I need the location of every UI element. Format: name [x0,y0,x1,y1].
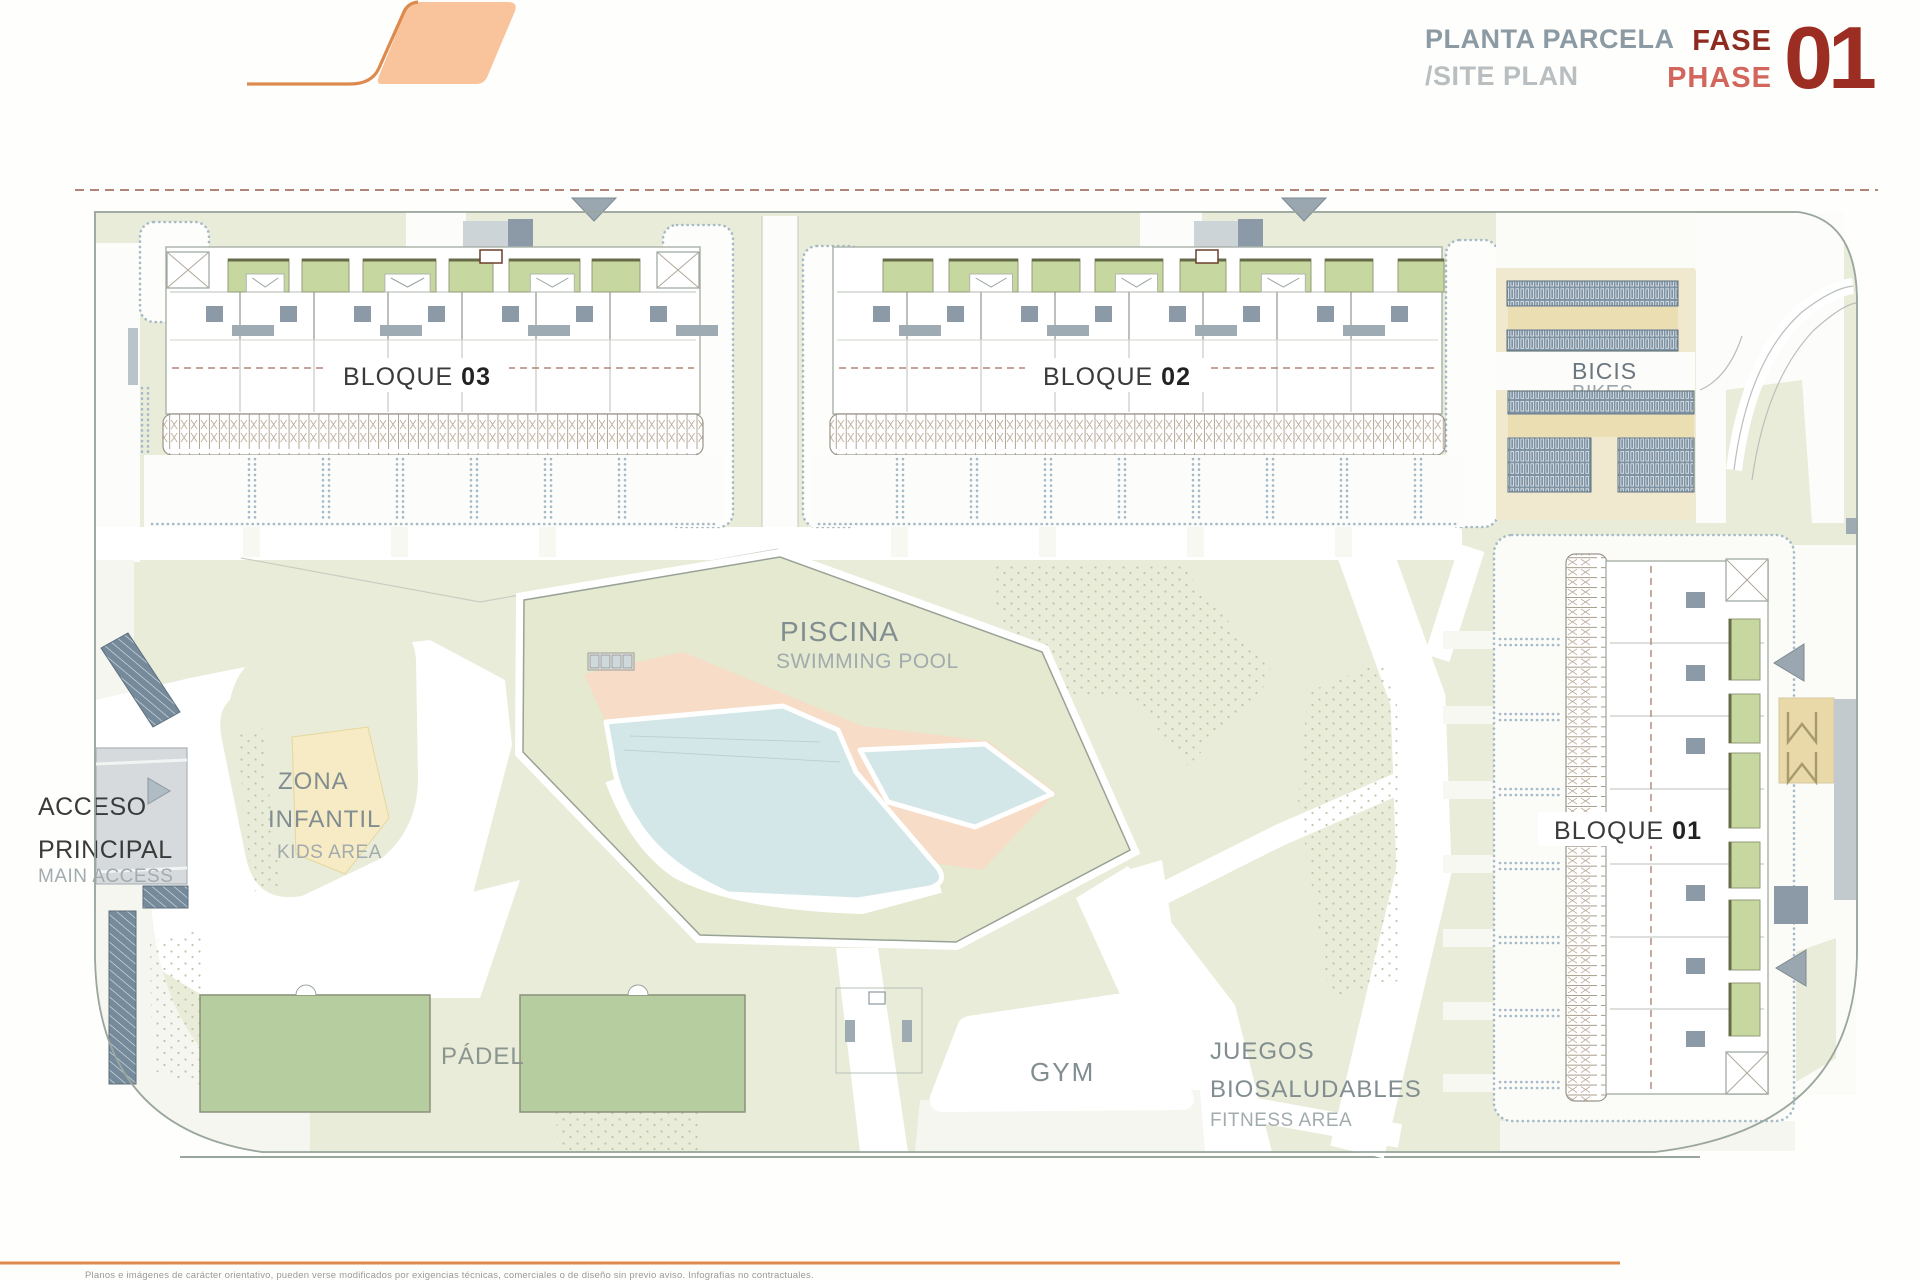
svg-text:/SITE PLAN: /SITE PLAN [1425,61,1579,91]
svg-text:BLOQUE 02: BLOQUE 02 [1043,363,1191,391]
svg-text:MAIN ACCESS: MAIN ACCESS [38,866,173,887]
svg-text:PRINCIPAL: PRINCIPAL [38,836,173,864]
svg-text:GYM: GYM [1030,1057,1095,1087]
svg-text:PISCINA: PISCINA [780,616,899,647]
svg-text:KIDS AREA: KIDS AREA [277,842,382,863]
svg-text:Planos e imágenes de carácter: Planos e imágenes de carácter orientativ… [85,1270,814,1280]
svg-text:PÁDEL: PÁDEL [441,1043,525,1070]
svg-text:PLANTA PARCELA: PLANTA PARCELA [1425,24,1675,54]
svg-text:INFANTIL: INFANTIL [268,806,381,833]
svg-text:FITNESS AREA: FITNESS AREA [1210,1110,1352,1131]
svg-text:JUEGOS: JUEGOS [1210,1038,1315,1065]
svg-text:PHASE: PHASE [1667,62,1772,94]
svg-text:SWIMMING POOL: SWIMMING POOL [776,650,959,673]
svg-text:BLOQUE 03: BLOQUE 03 [343,363,491,391]
svg-text:BLOQUE 01: BLOQUE 01 [1554,817,1702,845]
svg-text:01: 01 [1784,8,1875,107]
svg-text:BIOSALUDABLES: BIOSALUDABLES [1210,1076,1422,1103]
svg-text:FASE: FASE [1692,25,1772,57]
svg-text:ACCESO: ACCESO [38,793,147,821]
svg-text:BICIS: BICIS [1572,358,1637,384]
svg-text:ZONA: ZONA [278,768,349,795]
